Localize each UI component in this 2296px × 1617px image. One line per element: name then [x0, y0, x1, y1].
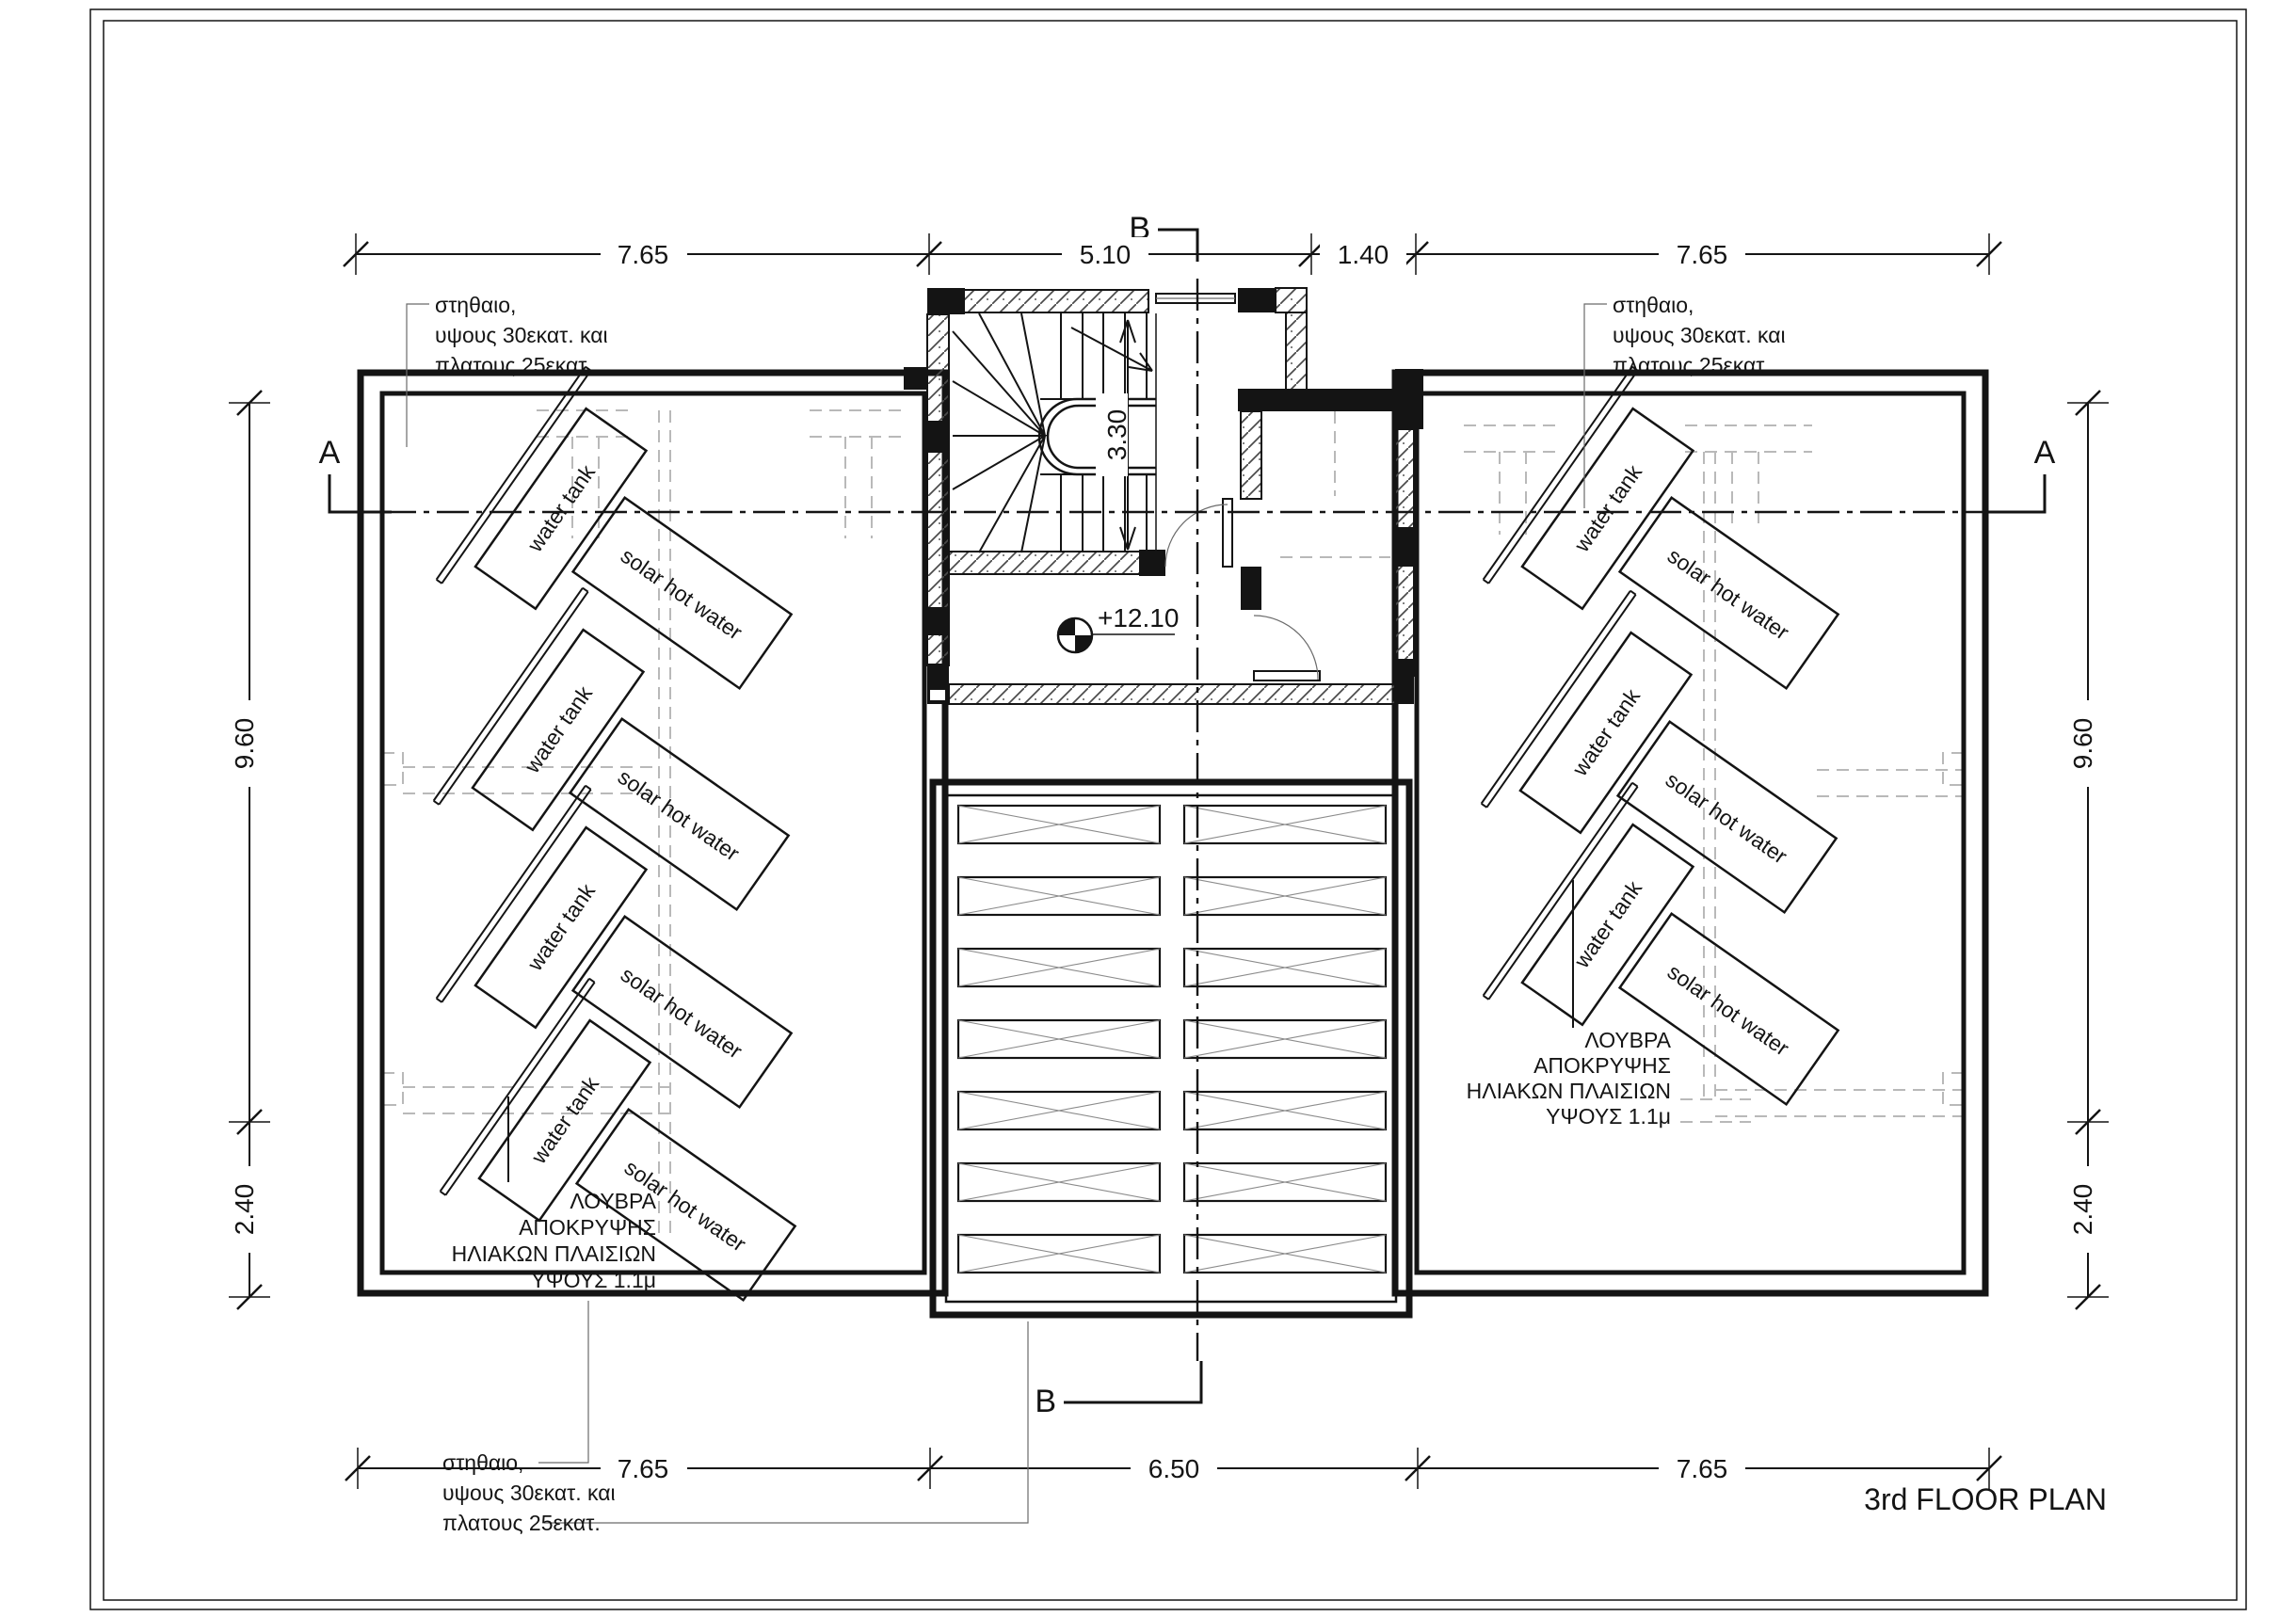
stair-top-wall: [949, 290, 1148, 312]
pergola-slats-right: [1184, 806, 1386, 1273]
drawing-sheet: 3.30 +12.10 water tank solar hot water w…: [0, 0, 2296, 1617]
door-roof-access: [1254, 616, 1320, 680]
note-line: υψους 30εκατ. και: [1613, 323, 1786, 347]
section-letter: A: [2034, 435, 2056, 471]
dim-bottom-3: 7.65: [1677, 1454, 1728, 1483]
note-parapet-top-left: στηθαιο, υψους 30εκατ. και πλατους 25εκα…: [407, 293, 608, 447]
note-line: ΛΟΥΒΡΑ: [570, 1189, 656, 1213]
dim-top-3: 1.40: [1338, 240, 1389, 269]
dimension-chain-left: 9.60 2.40: [227, 391, 270, 1309]
dim-bottom-2: 6.50: [1148, 1454, 1200, 1483]
level-marker: +12.10: [1058, 603, 1179, 652]
solar-panel-label: solar hot water: [1663, 959, 1794, 1061]
dim-left-1: 9.60: [230, 718, 259, 770]
vestibule-bottom-wall: [949, 684, 1395, 704]
solar-group-l2: water tank solar hot water: [434, 588, 838, 979]
dimension-chain-top: 7.65 5.10 1.40 7.65: [344, 233, 2001, 275]
solar-panel-label: solar hot water: [1663, 543, 1794, 645]
dim-bottom-1: 7.65: [618, 1454, 669, 1483]
note-line: ΥΨΟΥΣ 1.1μ: [531, 1268, 656, 1292]
section-letter: B: [1035, 1384, 1056, 1419]
machine-room-top-wall: [1238, 389, 1395, 411]
solar-panel-label: solar hot water: [614, 764, 745, 866]
water-tank-label: water tank: [522, 460, 600, 557]
water-tank-label: water tank: [1568, 460, 1646, 557]
note-line: πλατους 25εκατ.: [442, 1511, 601, 1535]
left-roof-parapet: [361, 373, 945, 1293]
central-pergola: [933, 782, 1409, 1315]
louver-screen: [437, 786, 591, 1002]
note-line: ΥΨΟΥΣ 1.1μ: [1546, 1104, 1671, 1129]
stair-bottom-wall: [949, 552, 1147, 574]
floor-plan-canvas: 3.30 +12.10 water tank solar hot water w…: [0, 0, 2296, 1617]
louver-screen: [1484, 783, 1638, 1000]
stair-well-dimension: 3.30: [1096, 320, 1135, 550]
solar-panel-label: solar hot water: [617, 543, 747, 645]
pergola-slats-left: [958, 806, 1160, 1273]
sheet-border: [90, 9, 2246, 1609]
note-line: υψους 30εκατ. και: [442, 1481, 616, 1505]
section-marker-a-right: A: [1983, 435, 2056, 512]
note-line: πλατους 25εκατ.: [1613, 353, 1771, 377]
dim-top-2: 5.10: [1080, 240, 1132, 269]
water-tank-label: water tank: [519, 681, 597, 778]
solar-group-l4: water tank solar hot water: [441, 979, 844, 1369]
note-line: υψους 30εκατ. και: [435, 323, 608, 347]
louver-screen: [437, 367, 591, 584]
stair-core: 3.30 +12.10: [904, 288, 1423, 704]
drawing-title: 3rd FLOOR PLAN: [1864, 1482, 2107, 1516]
water-tank-label: water tank: [1566, 684, 1645, 781]
solar-panel-label: solar hot water: [1662, 767, 1792, 869]
section-marker-b-bottom: B: [1035, 1361, 1201, 1419]
stair-railing: [1156, 294, 1235, 303]
note-line: στηθαιο,: [1613, 293, 1694, 317]
dim-top-4: 7.65: [1677, 240, 1728, 269]
stair-well-dim-text: 3.30: [1102, 409, 1132, 461]
note-line: ΑΠΟΚΡΥΨΗΣ: [519, 1215, 656, 1240]
dimension-chain-right: 9.60 2.40: [2065, 391, 2109, 1309]
section-letter: A: [319, 435, 341, 471]
louver-screen: [434, 588, 588, 805]
water-tank-label: water tank: [1568, 876, 1646, 973]
louver-screen: [1484, 367, 1638, 584]
louver-screen: [1482, 591, 1636, 808]
dim-left-2: 2.40: [230, 1184, 259, 1236]
dim-right-2: 2.40: [2068, 1184, 2097, 1236]
dim-top-1: 7.65: [618, 240, 669, 269]
door-machine-room: [1165, 499, 1232, 567]
solar-panel-label: solar hot water: [617, 962, 747, 1064]
note-line: ΗΛΙΑΚΩΝ ΠΛΑΙΣΙΩΝ: [452, 1241, 656, 1266]
note-parapet-bottom: στηθαιο, υψους 30εκατ. και πλατους 25εκα…: [442, 1301, 1028, 1535]
level-value: +12.10: [1098, 603, 1179, 632]
water-tank-label: water tank: [522, 879, 600, 976]
machine-room-left-wall: [1241, 411, 1261, 499]
dim-right-1: 9.60: [2068, 718, 2097, 770]
solar-group-l3: water tank solar hot water: [437, 786, 841, 1177]
note-line: ΛΟΥΒΡΑ: [1584, 1028, 1671, 1052]
note-line: ΗΛΙΑΚΩΝ ΠΛΑΙΣΙΩΝ: [1467, 1079, 1671, 1103]
note-line: ΑΠΟΚΡΥΨΗΣ: [1533, 1053, 1671, 1078]
note-line: στηθαιο,: [435, 293, 516, 317]
note-line: πλατους 25εκατ.: [435, 353, 593, 377]
note-line: στηθαιο,: [442, 1450, 523, 1475]
solar-group-l1: water tank solar hot water: [437, 367, 841, 758]
